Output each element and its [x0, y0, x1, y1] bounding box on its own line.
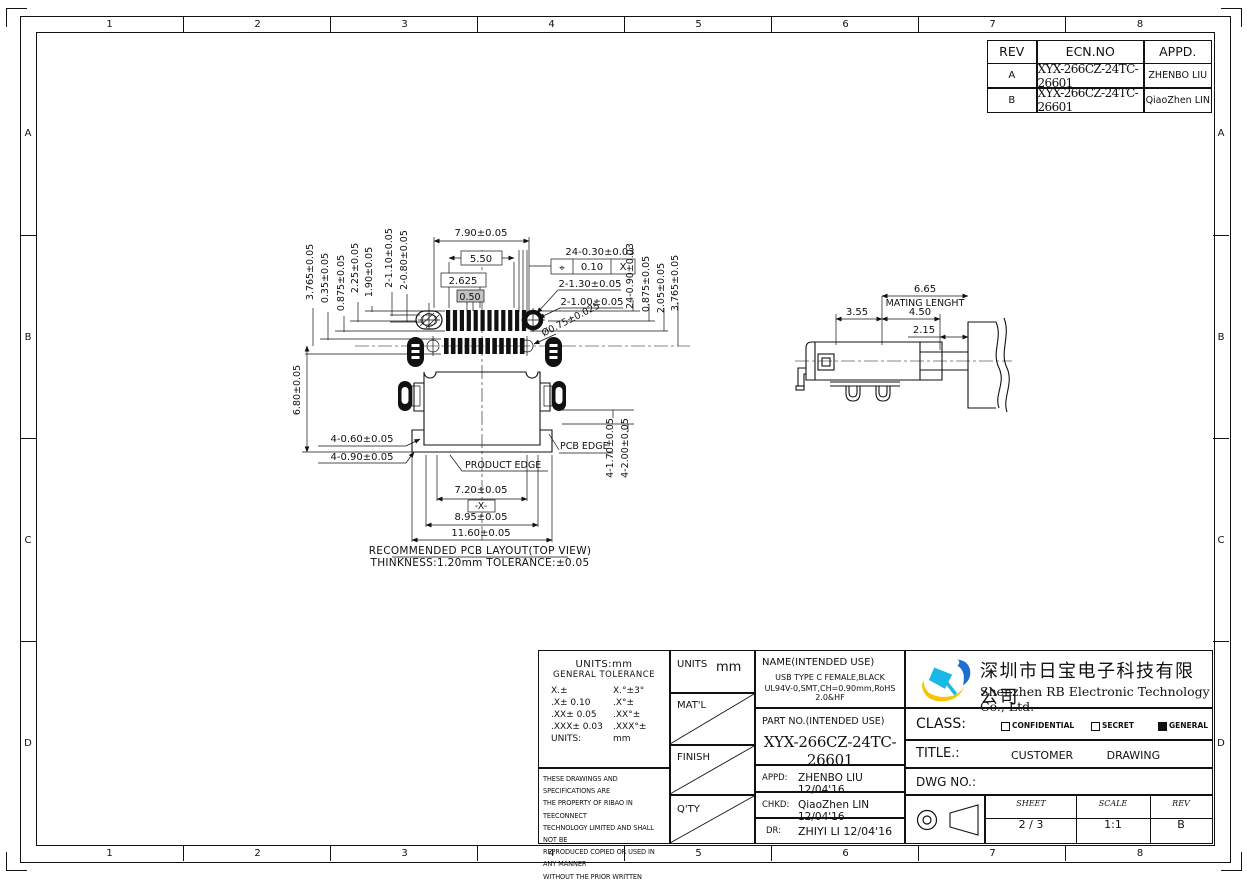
- rev-row-a-ecn: XYX-266CZ-24TC-26601: [1037, 63, 1145, 88]
- zone-row-right-d: D: [1213, 641, 1229, 845]
- scale-value: 1:1: [1076, 818, 1151, 843]
- company-logo: [916, 655, 974, 705]
- rev-row-b-appd: QiaoZhen LIN: [1144, 88, 1213, 113]
- zone-col-top-1: 1: [36, 16, 183, 32]
- rev-row-a-appd: ZHENBO LIU: [1144, 63, 1213, 88]
- sheet-scale-rev-table: SHEET SCALE REV 2 / 3 1:1 B: [985, 795, 1213, 844]
- appd-header: APPD.: [1144, 40, 1213, 64]
- zone-col-top-4: 4: [477, 16, 625, 32]
- zone-col-bot-6: 6: [771, 845, 919, 861]
- units-value: mm: [716, 660, 741, 675]
- class-option-general: GENERAL: [1158, 721, 1208, 731]
- name-line2: UL94V-0,SMT,CH=0.90mm,RoHS 2.0&HF: [756, 684, 904, 702]
- zone-row-left-b: B: [20, 235, 36, 439]
- scale-label: SCALE: [1076, 796, 1151, 819]
- name-label: NAME(INTENDED USE): [762, 657, 904, 668]
- tolerance-title: UNITS:mm: [539, 659, 669, 670]
- tol-row: X.±X.°±3°: [551, 686, 669, 696]
- sheet-value: 2 / 3: [986, 818, 1077, 843]
- zone-row-right-c: C: [1213, 438, 1229, 642]
- tolerance-box: UNITS:mm GENERAL TOLERANCE X.±X.°±3° .X±…: [538, 650, 670, 768]
- rev-row-b-ecn: XYX-266CZ-24TC-26601: [1037, 88, 1145, 113]
- name-line1: USB TYPE C FEMALE,BLACK: [756, 673, 904, 682]
- tol-row: .XXX± 0.03.XXX°±: [551, 722, 669, 732]
- class-option-confidential: CONFIDENTIAL: [1001, 721, 1074, 731]
- checkbox-icon: [1091, 722, 1100, 731]
- qty-cell: Q'TY: [670, 795, 755, 844]
- zone-row-left-d: D: [20, 641, 36, 845]
- tol-row: UNITS:mm: [551, 734, 669, 744]
- zone-col-top-8: 8: [1065, 16, 1214, 32]
- rev-label: REV: [1150, 796, 1212, 819]
- title-label: TITLE.:: [916, 746, 960, 761]
- drawing-sheet: 7.90±0.05 5.50 2.625 0.50 24-0.30±0.03 ⌖…: [0, 0, 1247, 880]
- checkbox-icon: [1001, 722, 1010, 731]
- sheet-label: SHEET: [986, 796, 1077, 819]
- revision-table: REV ECN.NO APPD. A XYX-266CZ-24TC-26601 …: [987, 40, 1212, 113]
- appd-cell: APPD: ZHENBO LIU 12/04'16: [755, 765, 905, 792]
- company-cell: 深圳市日宝电子科技有限公司 Shenzhen RB Electronic Tec…: [905, 650, 1213, 708]
- class-cell: CLASS: CONFIDENTIAL SECRET GENERAL: [905, 708, 1213, 740]
- zone-row-left-a: A: [20, 32, 36, 235]
- checkbox-checked-icon: [1158, 722, 1167, 731]
- tol-row: .X± 0.10.X°±: [551, 698, 669, 708]
- zone-col-bot-2: 2: [183, 845, 331, 861]
- title-cell: TITLE.: CUSTOMER DRAWING: [905, 740, 1213, 768]
- legal-notice: THESE DRAWINGS AND SPECIFICATIONS ARETHE…: [538, 768, 670, 844]
- ecn-header: ECN.NO: [1037, 40, 1145, 64]
- zone-col-top-7: 7: [918, 16, 1066, 32]
- units-cell: UNITS mm: [670, 650, 755, 693]
- chkd-cell: CHKD: QiaoZhen LIN 12/04'16: [755, 792, 905, 818]
- tol-row: .XX± 0.05.XX°±: [551, 710, 669, 720]
- rev-row-a-rev: A: [987, 63, 1038, 88]
- class-label: CLASS:: [916, 716, 966, 732]
- zone-col-top-5: 5: [624, 16, 772, 32]
- zone-row-right-a: A: [1213, 32, 1229, 235]
- dwg-label: DWG NO.:: [916, 775, 976, 789]
- zone-col-bot-8: 8: [1065, 845, 1214, 861]
- part-no-cell: PART NO.(INTENDED USE) XYX-266CZ-24TC-26…: [755, 708, 905, 765]
- projection-cell: [905, 795, 985, 844]
- class-option-secret: SECRET: [1091, 721, 1134, 731]
- matl-cell: MAT'L: [670, 693, 755, 745]
- zone-row-left-c: C: [20, 438, 36, 642]
- tolerance-subtitle: GENERAL TOLERANCE: [539, 670, 669, 680]
- dr-cell: DR: ZHIYI LI 12/04'16: [755, 818, 905, 844]
- zone-col-top-3: 3: [330, 16, 478, 32]
- part-number: XYX-266CZ-24TC-26601: [756, 733, 904, 769]
- finish-cell: FINISH: [670, 745, 755, 795]
- rev-header: REV: [987, 40, 1038, 64]
- title-value: CUSTOMER DRAWING: [1011, 749, 1160, 762]
- part-label: PART NO.(INTENDED USE): [762, 716, 904, 727]
- rev-value: B: [1150, 818, 1212, 831]
- zone-row-right-b: B: [1213, 235, 1229, 439]
- zone-col-bot-1: 1: [36, 845, 183, 861]
- zone-col-bot-3: 3: [330, 845, 478, 861]
- dwg-no-cell: DWG NO.:: [905, 768, 1213, 795]
- rev-row-b-rev: B: [987, 88, 1038, 113]
- name-cell: NAME(INTENDED USE) USB TYPE C FEMALE,BLA…: [755, 650, 905, 708]
- dr-value: ZHIYI LI 12/04'16: [798, 825, 892, 838]
- zone-col-top-6: 6: [771, 16, 919, 32]
- zone-col-top-2: 2: [183, 16, 331, 32]
- zone-col-bot-7: 7: [918, 845, 1066, 861]
